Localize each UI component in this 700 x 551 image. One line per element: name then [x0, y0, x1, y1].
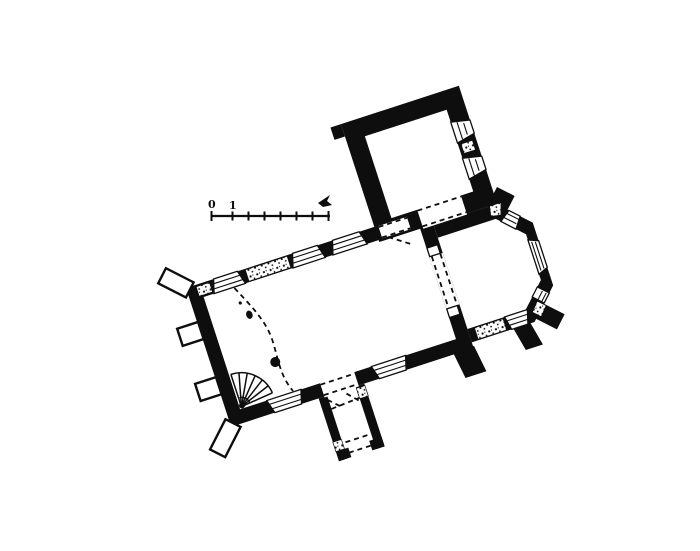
nave-south-window-2 — [371, 355, 410, 379]
scale-bar: 0 1 — [208, 195, 332, 221]
scale-one-label: 1 — [229, 199, 237, 212]
apse-east-window — [528, 237, 549, 274]
floor-plan-sheet: 0 1 — [0, 0, 700, 551]
flag-mark-icon — [318, 195, 332, 207]
floor-plan-drawing: 0 1 — [0, 0, 700, 551]
west-wall-buttress-lower — [195, 377, 221, 401]
scale-zero-label: 0 — [208, 198, 216, 211]
church-plan — [127, 77, 586, 498]
chancel-arch-opening — [426, 244, 462, 318]
south-doorway-to-porch — [320, 371, 359, 397]
nave-north-window-3 — [329, 231, 368, 255]
masonry-blob-small — [245, 310, 254, 320]
west-wall-buttress-upper — [177, 322, 203, 346]
